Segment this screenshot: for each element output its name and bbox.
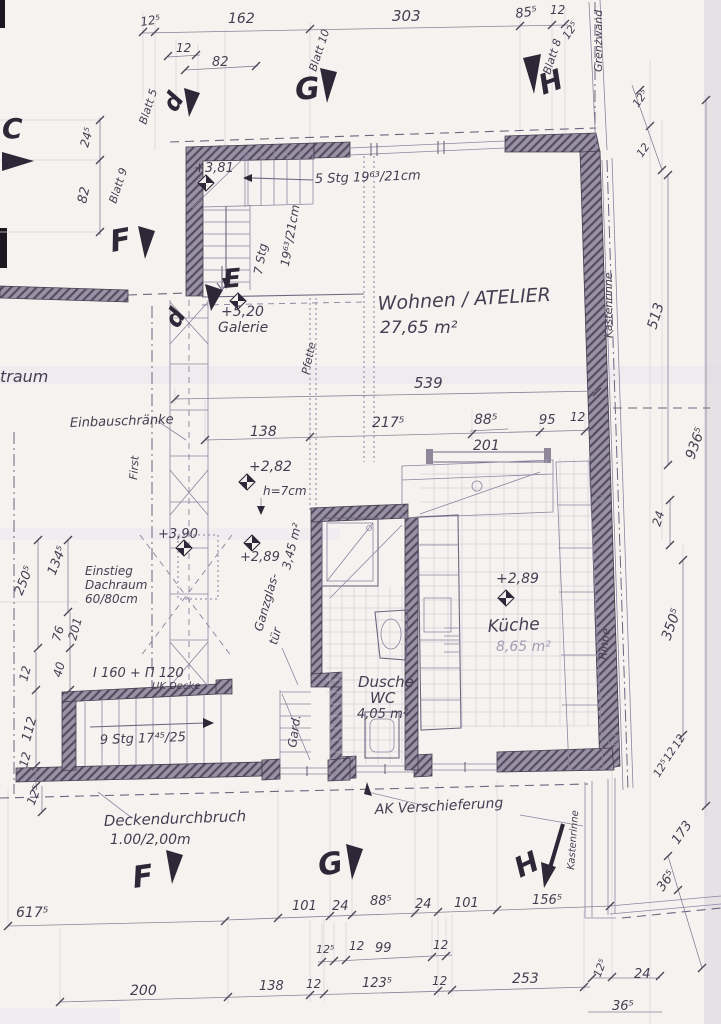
dim-top: 303: [392, 7, 421, 25]
room-label-kueche: Küche: [487, 614, 540, 637]
dim-bottom: 200: [130, 983, 157, 999]
dim-top: 12: [550, 3, 565, 17]
dim-right: 36⁵: [612, 999, 634, 1014]
dim-bottom: 12: [349, 939, 364, 953]
level-289b: +2,89: [496, 571, 539, 587]
note-beams-2: UK Decke: [152, 681, 200, 692]
dim-bottom: 617⁵: [16, 905, 49, 921]
wall-top-left-piece: [314, 142, 350, 158]
dim-top: 12: [176, 41, 191, 55]
note-einstieg-1: Einstieg: [85, 564, 133, 578]
room-label-partial: traum: [0, 367, 48, 386]
dim-top: 82: [212, 55, 229, 70]
level-390: +3,90: [158, 527, 198, 542]
note-einstieg-3: 60/80cm: [85, 592, 138, 606]
scan-edge-mark: [0, 228, 7, 268]
dim-top: 162: [228, 11, 255, 27]
section-letter-e: E: [222, 264, 243, 295]
dim-bottom: 88⁵: [370, 894, 392, 909]
wall-gard-foot: [328, 758, 350, 781]
dim-mid-window-width: 88⁵: [474, 412, 498, 428]
dim-right: 24: [634, 967, 651, 982]
wall-stair9-left: [62, 701, 76, 771]
grenzwand-label: Grenzwand: [592, 9, 605, 72]
note-first: First: [127, 455, 142, 480]
dim-mid: 217⁵: [372, 415, 405, 431]
room-area-wohnen: 27,65 m²: [380, 318, 458, 338]
dim-mid-window-sill: 201: [473, 438, 500, 454]
note-beams: I 160 + Π 120: [93, 666, 184, 681]
dim-top: 12⁵: [139, 12, 161, 29]
dim-mid: 539: [414, 374, 443, 392]
dim-mid: 138: [250, 424, 277, 440]
level-289a: +2,89: [240, 550, 280, 565]
dim-bottom: 156⁵: [532, 893, 562, 908]
dim-bottom: 12: [306, 977, 321, 991]
wall-gard-cap: [311, 672, 342, 687]
kitchen-window-post: [544, 448, 551, 463]
scan-edge-mark: [0, 0, 5, 28]
room-label-galerie: Galerie: [218, 320, 268, 336]
section-letter-c: C: [2, 112, 23, 145]
scan-band: [0, 366, 721, 384]
scan-band: [0, 1008, 120, 1024]
wall-pier: [262, 759, 280, 780]
dim-bottom: 24: [332, 899, 349, 914]
note-einstieg-2: Dachraum: [85, 578, 147, 592]
dim-bottom: 253: [512, 971, 539, 987]
floorplan-scan-page: 12⁵ 162 12 82 303 85⁵ 12 12⁵ Blatt 10 Bl…: [0, 0, 721, 1024]
level-galerie: +5,20: [221, 304, 264, 320]
note-deckendurchbruch-size: 1.00/2,00m: [110, 832, 191, 848]
wall-top-right-corner: [505, 133, 600, 152]
dim-bottom: 101: [292, 899, 317, 914]
room-label-wc: WC: [370, 689, 396, 707]
stairs-9stg-label: 9 Stg 17⁴⁵/25: [100, 730, 187, 748]
room-area-dusche: 4,05 m²: [357, 707, 408, 722]
dim-top: 85⁵: [514, 4, 538, 22]
dim-bottom: 123⁵: [362, 976, 392, 991]
kastenrinne-label-top: Kastenrinne: [602, 272, 615, 338]
level-381: +3,81: [194, 161, 234, 176]
dim-bottom: 24: [415, 897, 432, 912]
scan-edge-band: [704, 0, 721, 1024]
dim-mid: 95: [539, 413, 556, 428]
wall-stair9-cap: [216, 679, 232, 694]
dim-bottom: 12: [433, 938, 448, 952]
room-area-kueche: 8,65 m²: [496, 639, 551, 655]
level-282: +2,82: [249, 459, 292, 475]
dim-bottom: 101: [454, 896, 479, 911]
kitchen-window-post: [426, 449, 433, 464]
dim-bottom: 99: [375, 941, 392, 956]
section-letter-g-top: G: [294, 71, 322, 108]
dim-bottom: 12: [432, 974, 447, 988]
dim-mid: 12: [570, 410, 585, 424]
note-h7: h=7cm: [263, 484, 307, 498]
wall-gard-vertical: [330, 687, 342, 763]
floorplan-drawing: 12⁵ 162 12 82 303 85⁵ 12 12⁵ Blatt 10 Bl…: [0, 0, 721, 1024]
dim-bottom: 138: [259, 979, 284, 994]
dim-bottom: 12⁵: [316, 943, 334, 956]
wall-bath-left: [311, 522, 322, 676]
